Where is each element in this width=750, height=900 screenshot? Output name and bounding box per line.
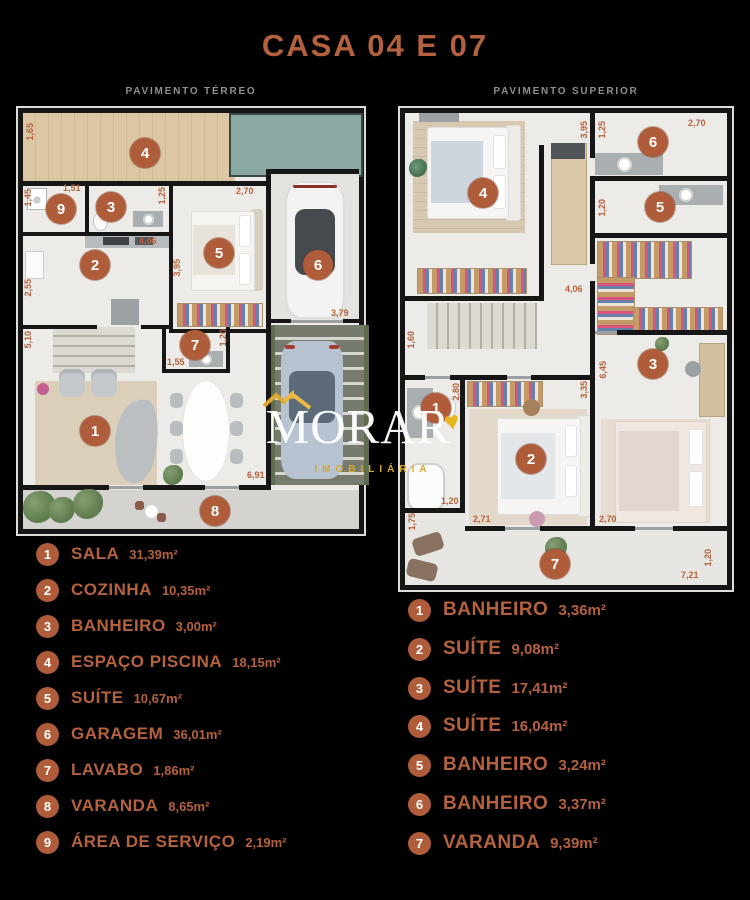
floor-plan-superior: 4 6 5 3 1 2 7 3,95 1,25 2,70 1,20 4,06 1… — [400, 108, 732, 590]
hall-cabinet — [551, 143, 587, 265]
legend-item: 6BANHEIRO3,37m² — [408, 790, 606, 818]
legend-room-area: 3,24m² — [558, 757, 606, 774]
room-badge-7: 7 — [540, 549, 570, 579]
legend-item: 2COZINHA10,35m² — [36, 576, 210, 604]
pillow — [493, 135, 506, 169]
wall — [85, 181, 89, 236]
wardrobe — [417, 268, 527, 294]
bistro-chair — [135, 501, 144, 510]
dim-label: 1,65 — [26, 123, 35, 141]
legend-room-area: 3,37m² — [558, 796, 606, 813]
legend-room-name: VARANDA — [443, 832, 540, 854]
door-threshold — [595, 331, 617, 334]
wall — [23, 181, 270, 186]
bench — [419, 113, 459, 122]
armchair — [59, 369, 85, 397]
wall — [23, 485, 109, 490]
wall — [590, 176, 595, 264]
plant — [163, 465, 183, 485]
legend-badge: 3 — [408, 677, 431, 700]
legend-room-area: 9,08m² — [511, 641, 559, 658]
dim-label: 1,55 — [167, 358, 185, 367]
logo-tagline: IMOBILIÁRIA — [298, 464, 448, 475]
legend-badge: 6 — [36, 723, 59, 746]
door-threshold — [505, 527, 540, 530]
dim-label: 2,71 — [473, 515, 491, 524]
legend-room-name: BANHEIRO — [443, 754, 548, 776]
legend-item: 7LAVABO1,86m² — [36, 756, 194, 784]
wall — [405, 375, 425, 380]
dim-label: 4,06 — [565, 285, 583, 294]
legend-badge: 7 — [36, 759, 59, 782]
legend-badge: 5 — [408, 754, 431, 777]
dim-label: 1,20 — [441, 497, 459, 506]
legend-badge: 2 — [408, 638, 431, 661]
legend-room-name: SUÍTE — [71, 688, 124, 708]
legend-badge: 4 — [36, 651, 59, 674]
armchair — [91, 369, 117, 397]
dim-label: 2,55 — [24, 279, 33, 297]
kitchen-sink — [103, 237, 129, 245]
legend-badge: 1 — [408, 599, 431, 622]
wall — [239, 485, 271, 490]
legend-room-name: BANHEIRO — [71, 616, 166, 636]
wall — [673, 526, 727, 531]
pool — [229, 113, 363, 177]
sink — [679, 188, 693, 202]
legend-room-area: 2,19m² — [245, 835, 286, 850]
legend-room-name: ESPAÇO PISCINA — [71, 652, 222, 672]
legend-item: 7VARANDA9,39m² — [408, 829, 598, 857]
legend-item: 1SALA31,39m² — [36, 540, 178, 568]
door-threshold — [635, 527, 673, 530]
room-badge-5: 5 — [204, 238, 234, 268]
legend-item: 6GARAGEM36,01m² — [36, 720, 222, 748]
wall — [405, 296, 544, 301]
closet-wardrobe — [597, 277, 635, 335]
legend-badge: 3 — [36, 615, 59, 638]
dim-label: 3,35 — [580, 381, 589, 399]
wall — [539, 145, 544, 297]
wall — [590, 113, 595, 158]
sink — [143, 214, 154, 225]
room-badge-4: 4 — [468, 178, 498, 208]
pillow — [239, 253, 251, 285]
dim-label: 1,25 — [158, 187, 167, 205]
dim-label: 2,80 — [452, 383, 461, 401]
title-casa: CASA — [262, 28, 357, 63]
dim-label: 2,70 — [688, 119, 706, 128]
pouf — [523, 399, 540, 416]
wall — [465, 526, 505, 531]
wall — [590, 233, 727, 238]
legend-room-area: 3,36m² — [558, 602, 606, 619]
legend-room-name: COZINHA — [71, 580, 152, 600]
heading-pavimento-superior: PAVIMENTO SUPERIOR — [400, 86, 732, 97]
wall — [162, 369, 230, 373]
wardrobe — [177, 303, 263, 327]
pouf — [529, 511, 545, 527]
legend-item: 3BANHEIRO3,00m² — [36, 612, 217, 640]
room-badge-2: 2 — [80, 250, 110, 280]
chair — [170, 421, 183, 436]
desk-chair — [685, 361, 701, 377]
page-title: CASA 04 E 07 — [0, 28, 750, 64]
dim-label: 1,75 — [408, 513, 417, 531]
dim-label: 2,70 — [599, 515, 617, 524]
legend-badge: 7 — [408, 832, 431, 855]
stairs — [53, 327, 135, 373]
legend-room-area: 17,41m² — [511, 680, 567, 697]
pillow — [689, 471, 703, 507]
desk — [699, 343, 725, 417]
car-taillight — [329, 345, 339, 349]
car-taillight — [285, 345, 295, 349]
tv — [551, 143, 585, 159]
legend-room-area: 9,39m² — [550, 835, 598, 852]
wall — [450, 375, 507, 380]
door-threshold — [507, 376, 531, 379]
chair — [170, 449, 183, 464]
sink — [617, 157, 632, 172]
wall — [23, 325, 97, 329]
round-table — [433, 547, 465, 579]
bistro-chair — [157, 513, 166, 522]
dim-label: 1,45 — [24, 189, 33, 207]
room-badge-4: 4 — [130, 138, 160, 168]
legend-badge: 4 — [408, 715, 431, 738]
wall — [162, 327, 166, 373]
heading-pavimento-terreo: PAVIMENTO TÉRREO — [18, 86, 364, 97]
blanket — [619, 431, 679, 511]
legend-badge: 8 — [36, 795, 59, 818]
door-threshold — [205, 486, 239, 489]
wall — [143, 485, 205, 490]
logo-morar: MORAR — [252, 402, 464, 451]
legend-room-name: SUÍTE — [443, 677, 501, 699]
dim-label: 3,95 — [580, 121, 589, 139]
legend-item: 5BANHEIRO3,24m² — [408, 751, 606, 779]
title-conj: E — [416, 28, 439, 63]
stairs — [427, 303, 537, 349]
chair — [230, 393, 243, 408]
room-badge-5: 5 — [645, 192, 675, 222]
legend-badge: 9 — [36, 831, 59, 854]
wall — [590, 335, 595, 528]
dim-label: 5,10 — [24, 331, 33, 349]
dim-label: 3,79 — [331, 309, 349, 318]
wall — [141, 325, 173, 329]
legend-badge: 2 — [36, 579, 59, 602]
legend-room-area: 3,00m² — [176, 619, 217, 634]
stove — [25, 251, 44, 279]
legend-badge: 6 — [408, 793, 431, 816]
title-num1: 04 — [367, 28, 405, 63]
legend-item: 4ESPAÇO PISCINA18,15m² — [36, 648, 281, 676]
wall — [266, 169, 359, 174]
car-taillight — [293, 185, 337, 188]
dim-label: 1,60 — [407, 331, 416, 349]
room-badge-8: 8 — [200, 496, 230, 526]
legend-room-name: GARAGEM — [71, 724, 163, 744]
wall — [169, 181, 173, 333]
dim-label: 6,45 — [599, 361, 608, 379]
chair — [230, 449, 243, 464]
room-badge-3: 3 — [638, 349, 668, 379]
dim-label: 1,20 — [598, 199, 607, 217]
legend-item: 8VARANDA8,65m² — [36, 792, 209, 820]
wall — [531, 375, 595, 380]
legend-item: 3SUÍTE17,41m² — [408, 674, 567, 702]
wall — [540, 526, 635, 531]
legend-room-area: 18,15m² — [232, 655, 280, 670]
dim-label: 1,25 — [598, 121, 607, 139]
legend-item: 2SUÍTE9,08m² — [408, 635, 559, 663]
pillow — [239, 215, 251, 247]
legend-badge: 1 — [36, 543, 59, 566]
wall — [343, 319, 359, 323]
legend-room-area: 10,35m² — [162, 583, 210, 598]
legend-room-name: BANHEIRO — [443, 599, 548, 621]
fridge — [111, 299, 139, 325]
pool-deck — [23, 113, 235, 183]
wall — [590, 281, 595, 335]
legend-room-name: LAVABO — [71, 760, 143, 780]
dim-label: 4,06 — [139, 237, 157, 246]
legend-item: 9ÁREA DE SERVIÇO2,19m² — [36, 828, 287, 856]
dim-label: 1,20 — [219, 329, 228, 347]
dim-label: 1,20 — [704, 549, 713, 567]
wall — [590, 176, 727, 181]
legend-room-name: BANHEIRO — [443, 793, 548, 815]
room-badge-9: 9 — [46, 194, 76, 224]
legend-room-area: 16,04m² — [511, 718, 567, 735]
legend-room-area: 1,86m² — [153, 763, 194, 778]
legend-item: 4SUÍTE16,04m² — [408, 712, 567, 740]
room-badge-2: 2 — [516, 444, 546, 474]
title-num2: 07 — [450, 28, 488, 63]
legend-badge: 5 — [36, 687, 59, 710]
chair — [170, 393, 183, 408]
room-badge-1: 1 — [80, 416, 110, 446]
chair — [230, 421, 243, 436]
room-badge-7: 7 — [180, 330, 210, 360]
pillow — [689, 429, 703, 465]
dim-label: 7,21 — [681, 571, 699, 580]
pillow — [565, 465, 577, 497]
legend-room-name: SALA — [71, 544, 119, 564]
wall — [617, 330, 727, 335]
legend-room-name: VARANDA — [71, 796, 158, 816]
garage-door-threshold — [291, 320, 343, 323]
legend-room-area: 31,39m² — [129, 547, 177, 562]
room-badge-3: 3 — [96, 192, 126, 222]
legend-item: 5SUÍTE10,67m² — [36, 684, 182, 712]
room-badge-6: 6 — [638, 127, 668, 157]
room-badge-6: 6 — [303, 250, 333, 280]
door-threshold — [109, 486, 143, 489]
dim-label: 3,95 — [173, 259, 182, 277]
dim-label: 6,91 — [247, 471, 265, 480]
legend-item: 1BANHEIRO3,36m² — [408, 596, 606, 624]
legend-room-area: 8,65m² — [168, 799, 209, 814]
dining-table — [183, 381, 229, 481]
pillow — [565, 425, 577, 457]
legend-room-area: 10,67m² — [134, 691, 182, 706]
door-threshold — [425, 376, 450, 379]
legend-room-area: 36,01m² — [173, 727, 221, 742]
dim-label: 2,70 — [236, 187, 254, 196]
closet-wardrobe — [597, 241, 692, 279]
wall — [266, 319, 291, 323]
legend-room-name: SUÍTE — [443, 715, 501, 737]
dim-label: 1,51 — [63, 184, 81, 193]
flower-pot — [37, 383, 49, 395]
legend-room-name: ÁREA DE SERVIÇO — [71, 832, 235, 852]
legend-room-name: SUÍTE — [443, 638, 501, 660]
